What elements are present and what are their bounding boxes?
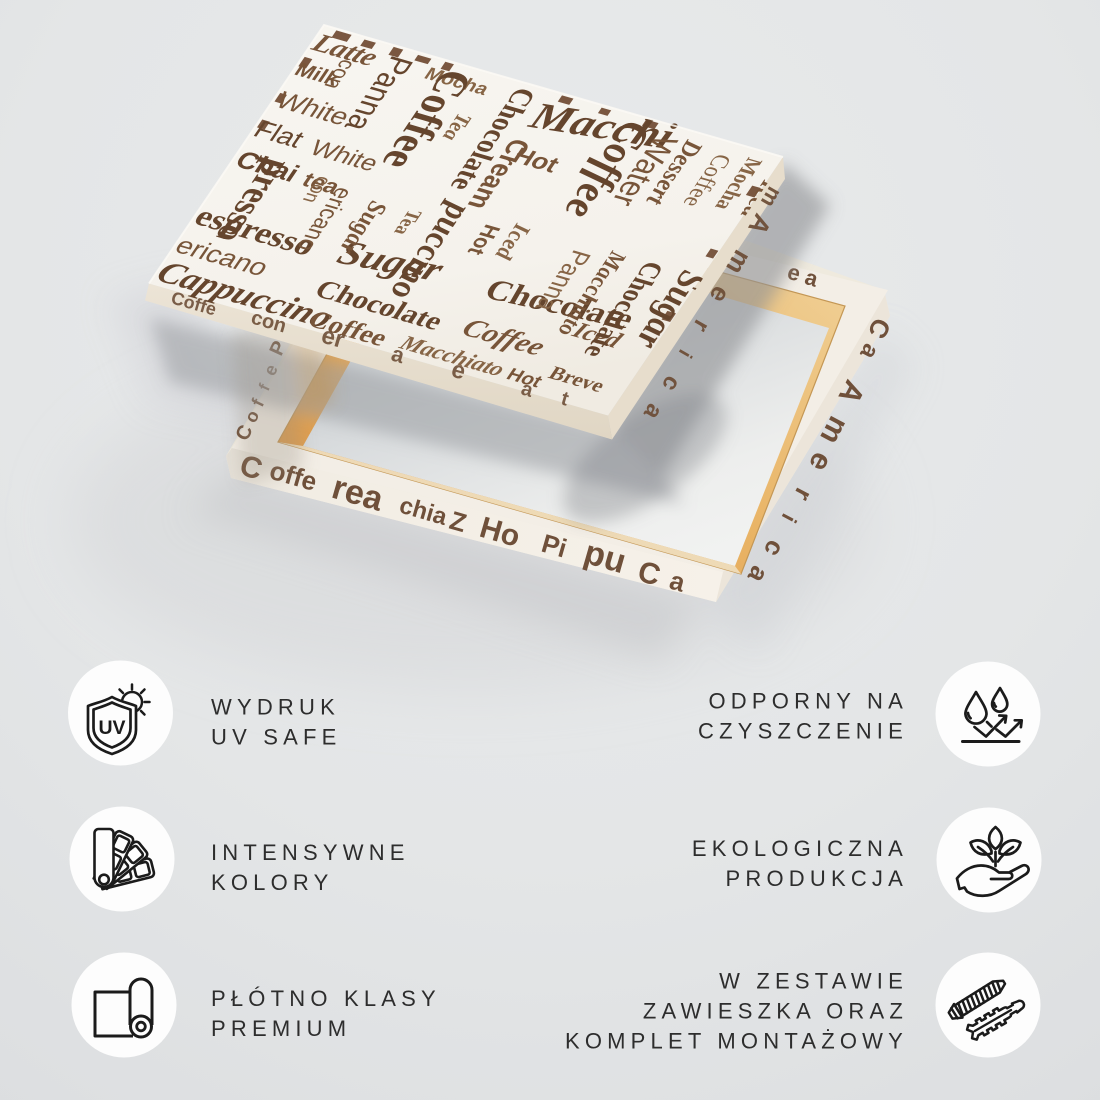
svg-text:CZYSZCZENIE: CZYSZCZENIE (698, 719, 908, 744)
svg-text:PRODUKCJA: PRODUKCJA (726, 866, 909, 891)
svg-text:EKOLOGICZNA: EKOLOGICZNA (692, 836, 908, 861)
svg-text:ODPORNY NA: ODPORNY NA (708, 689, 908, 714)
svg-text:PŁÓTNO KLASY: PŁÓTNO KLASY (211, 986, 441, 1011)
svg-text:KOMPLET MONTAŻOWY: KOMPLET MONTAŻOWY (565, 1029, 908, 1054)
svg-text:KOLORY: KOLORY (211, 870, 334, 895)
svg-text:PREMIUM: PREMIUM (211, 1016, 351, 1041)
svg-text:W ZESTAWIE: W ZESTAWIE (719, 969, 908, 994)
svg-text:UV SAFE: UV SAFE (211, 725, 342, 750)
svg-text:INTENSYWNE: INTENSYWNE (211, 840, 410, 865)
svg-text:UV: UV (98, 717, 125, 739)
svg-text:ZAWIESZKA ORAZ: ZAWIESZKA ORAZ (643, 999, 908, 1024)
svg-text:WYDRUK: WYDRUK (211, 695, 340, 720)
